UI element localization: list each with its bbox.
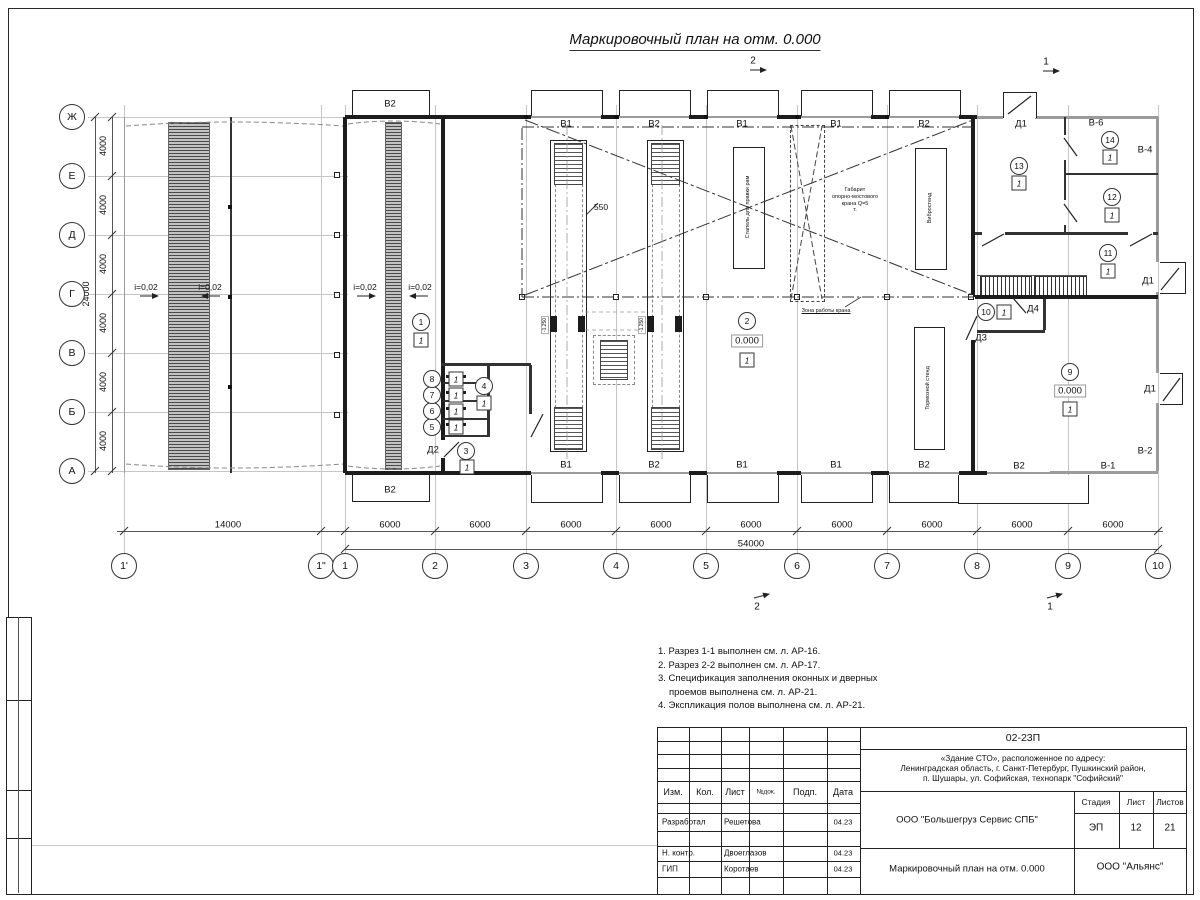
left-stamp-box [6, 700, 32, 792]
tb-line [827, 728, 828, 894]
axis-bubble: 2 [422, 553, 448, 579]
tb-org: ООО "Большегруз Сервис СПБ" [896, 815, 1038, 826]
room-number: 11 [1099, 244, 1117, 262]
column [228, 385, 232, 389]
dim-value: 4000 [98, 136, 108, 156]
gate-line [987, 472, 1050, 474]
door-label: Д1 [1015, 119, 1027, 130]
column [703, 294, 709, 300]
tb-object: п. Шушары, ул. Софийская, технопарк "Соф… [923, 773, 1123, 783]
axis-bubble: 7 [874, 553, 900, 579]
ramp-hatch [385, 122, 402, 470]
dim-value: 4000 [98, 254, 108, 274]
gate-vestibule [958, 475, 1089, 504]
slope-label: i=0,02 [198, 282, 221, 292]
tb-sheets-label: Листов [1156, 797, 1184, 807]
tb-line [658, 877, 860, 878]
axis-bubble: 10 [1145, 553, 1171, 579]
window-wall [1156, 292, 1159, 373]
tb-name: Решетова [724, 818, 761, 827]
door-box [1160, 373, 1183, 405]
gate-line [619, 116, 689, 118]
axis-bubble: 1 [332, 553, 358, 579]
axis-bubble: Б [59, 399, 85, 425]
partition [443, 435, 487, 438]
wall [975, 295, 1158, 299]
partition [975, 232, 982, 235]
axis-line [526, 105, 527, 553]
page-title: Маркировочный план на отм. 0.000 [569, 31, 820, 51]
dim-value: 4000 [98, 431, 108, 451]
axis-line [88, 412, 348, 413]
gate-vestibule [619, 90, 691, 118]
gate-vestibule [889, 475, 961, 503]
tb-line [658, 831, 860, 832]
gate-label: В2 [1013, 461, 1025, 472]
axis-bubble-g1: Ж [59, 104, 85, 130]
window-wall [1156, 403, 1159, 471]
column [334, 352, 340, 358]
room-number: 14 [1101, 131, 1119, 149]
column [614, 115, 618, 119]
axis-bubble: Е [59, 163, 85, 189]
door-box [1003, 92, 1037, 118]
wall-bottom [345, 471, 531, 475]
notes-block: 1. Разрез 1-1 выполнен см. л. АР-16. 2. … [658, 645, 878, 713]
dim-line [112, 117, 113, 473]
tb-line [658, 803, 860, 804]
partition [1064, 117, 1067, 135]
pit-bar [675, 316, 682, 332]
wall [971, 117, 975, 297]
gate-label: В1 [560, 119, 572, 130]
tb-line [860, 791, 1186, 792]
note-line: проемов выполнена см. л. АР-21. [658, 686, 878, 700]
floor-mark: 1 [460, 460, 475, 475]
tb-col: Лист [725, 787, 745, 797]
dim-value: 6000 [560, 520, 581, 531]
tb-col: Дата [833, 787, 853, 797]
floor-mark: 1 [449, 372, 464, 387]
partition [529, 365, 532, 414]
door-label: Д1 [1144, 384, 1156, 395]
tb-sheets-value: 21 [1164, 823, 1175, 834]
wall-bottom [777, 471, 801, 475]
column [795, 115, 799, 119]
gate-label: В1 [830, 460, 842, 471]
axis-bubble: 4 [603, 553, 629, 579]
axis-line [88, 176, 348, 177]
tb-col: №док. [756, 789, 775, 796]
column [968, 294, 974, 300]
column [334, 412, 340, 418]
axis-bubble: 5 [693, 553, 719, 579]
level-mark: 0.000 [731, 335, 763, 348]
gate-vestibule [531, 90, 603, 118]
column [334, 292, 340, 298]
axis-line [887, 105, 888, 553]
window-wall [977, 116, 1003, 119]
pit-stair [554, 143, 583, 185]
gate-line [889, 116, 959, 118]
axis-bubble: 8 [964, 553, 990, 579]
room-number: 6 [423, 402, 441, 420]
left-stamp-box [6, 790, 32, 840]
floor-mark: 1 [740, 353, 755, 368]
gate-vestibule [801, 475, 873, 503]
column [228, 205, 232, 209]
column [519, 294, 525, 300]
tb-col: Кол. [696, 787, 714, 797]
tb-line [783, 728, 784, 894]
equipment-label: Тормозной стенд [925, 366, 931, 410]
drawing-sheet: Маркировочный план на отм. 0.000 2 1 2 1… [0, 0, 1200, 900]
tb-code: 02-23П [1006, 732, 1040, 744]
pit-dim-550: 550 [594, 202, 608, 212]
tb-role: Н. контр. [662, 849, 695, 858]
column [334, 232, 340, 238]
tb-object: «Здание СТО», расположенное по адресу: [941, 753, 1106, 763]
tb-name: Двоеглазов [724, 849, 767, 858]
gate-vestibule [707, 475, 779, 503]
tb-object: Ленинградская область, г. Санкт-Петербур… [900, 763, 1145, 773]
partition [977, 330, 1045, 333]
tb-line [860, 848, 1186, 849]
section-mark-2-bottom: 2 [754, 602, 760, 613]
gate-line [531, 472, 601, 474]
door-label: Д4 [1027, 304, 1039, 315]
level-mark: 0.000 [1054, 385, 1086, 398]
dim-line [117, 531, 1163, 532]
tb-line [658, 768, 860, 769]
tb-line [721, 728, 722, 894]
floor-mark: 1 [1103, 150, 1118, 165]
gate-label: В1 [736, 119, 748, 130]
room-number: 2 [738, 312, 756, 330]
column [794, 294, 800, 300]
gate-label: В2 [918, 119, 930, 130]
tb-line [1119, 791, 1120, 848]
gate-label: В1 [830, 119, 842, 130]
floor-mark: 1 [1012, 176, 1027, 191]
service-pit-inner [555, 144, 583, 448]
room-number: 9 [1061, 363, 1079, 381]
tb-company: ООО "Альянс" [1097, 862, 1164, 873]
floor-mark: 1 [477, 396, 492, 411]
dim-value: 4000 [98, 372, 108, 392]
tb-line [658, 813, 860, 814]
gate-label: В2 [384, 485, 396, 496]
tb-date: 04.23 [834, 865, 853, 874]
wall [441, 117, 445, 440]
pit-bar [550, 316, 557, 332]
gate-line [707, 472, 777, 474]
gate-line [801, 472, 871, 474]
dim-total: 54000 [738, 539, 764, 550]
tb-line [658, 781, 860, 782]
gate-vestibule [531, 475, 603, 503]
dim-value: 6000 [921, 520, 942, 531]
gate-line [619, 472, 689, 474]
gate-vestibule [619, 475, 691, 503]
note-line: 4. Экспликация полов выполнена см. л. АР… [658, 699, 878, 713]
axis-bubble: Д [59, 222, 85, 248]
window-label: В-6 [1089, 118, 1104, 129]
axis-bubble: 1' [111, 553, 137, 579]
axis-line [88, 235, 348, 236]
tb-date: 04.23 [834, 849, 853, 858]
tb-stage-value: ЭП [1089, 823, 1103, 834]
crane-clearance-box [790, 125, 825, 302]
column [228, 295, 232, 299]
wall-bottom [871, 471, 889, 475]
frame-line [8, 845, 657, 846]
gate-line [707, 116, 777, 118]
floor-mark: 1 [1101, 264, 1116, 279]
ramp-hatch [168, 122, 210, 470]
window-label: В-1 [1101, 461, 1116, 472]
door-label: Д3 [975, 333, 987, 344]
service-pit-inner [652, 144, 680, 448]
column [885, 115, 889, 119]
tb-col: Подп. [793, 787, 817, 797]
gate-label: В1 [560, 460, 572, 471]
slope-label: i=0,02 [134, 282, 157, 292]
axis-bubble: 1" [308, 553, 334, 579]
slope-label: i=0,02 [353, 282, 376, 292]
equipment-label: Стапель для правки рам [745, 176, 751, 239]
pit-level-mark: -1.250 [541, 316, 549, 334]
room-number: 7 [423, 386, 441, 404]
gate-line [531, 116, 601, 118]
tb-line [658, 846, 860, 847]
left-stamp-box [6, 838, 32, 895]
gate-label: В2 [648, 460, 660, 471]
floor-mark: 1 [414, 333, 429, 348]
tb-line [658, 861, 860, 862]
axis-bubble: В [59, 340, 85, 366]
partition [1064, 160, 1067, 200]
pit-stair [554, 407, 583, 450]
pit-stair [651, 143, 680, 185]
dim-value: 14000 [215, 520, 241, 531]
note-line: 2. Разрез 2-2 выполнен см. л. АР-17. [658, 659, 878, 673]
dim-value: 4000 [98, 195, 108, 215]
section-mark-1-bottom: 1 [1047, 602, 1053, 613]
axis-bubble: 3 [513, 553, 539, 579]
column [524, 115, 528, 119]
crane-note: Габарит [845, 187, 865, 193]
room-number: 4 [475, 377, 493, 395]
wall-bottom [601, 471, 619, 475]
equipment-label: Вибростенд [927, 193, 933, 224]
partition [1065, 173, 1158, 176]
axis-line [435, 105, 436, 553]
title-block: 02-23П «Здание СТО», расположенное по ад… [657, 727, 1187, 895]
stair-hatch [600, 340, 628, 380]
tb-line [658, 754, 860, 755]
gate-vestibule [707, 90, 779, 118]
axis-bubble: 6 [784, 553, 810, 579]
floor-mark: 1 [449, 420, 464, 435]
dim-value: 6000 [650, 520, 671, 531]
tb-doc-title: Маркировочный план на отм. 0.000 [889, 864, 1045, 875]
wall-bottom [689, 471, 707, 475]
gate-line [801, 116, 871, 118]
gate-label: В1 [736, 460, 748, 471]
axis-line [616, 105, 617, 553]
axis-bubble: А [59, 458, 85, 484]
axis-line [88, 117, 348, 118]
column [884, 294, 890, 300]
tb-line [860, 749, 1186, 750]
dim-value: 6000 [1011, 520, 1032, 531]
axis-bubble: Г [59, 281, 85, 307]
crane-note: т. [853, 207, 856, 213]
tb-role: Разработал [662, 818, 706, 827]
note-line: 1. Разрез 1-1 выполнен см. л. АР-16. [658, 645, 878, 659]
door-box [1160, 262, 1186, 294]
partition [441, 363, 531, 366]
dim-value: 6000 [831, 520, 852, 531]
door-label: Д2 [427, 445, 439, 456]
axis-line [88, 471, 348, 472]
section-mark-2-top: 2 [750, 56, 756, 67]
slope-label: i=0,02 [408, 282, 431, 292]
dim-value: 6000 [1102, 520, 1123, 531]
room-number: 5 [423, 418, 441, 436]
floor-mark: 1 [1063, 402, 1078, 417]
tb-line [658, 741, 860, 742]
dim-value: 6000 [740, 520, 761, 531]
tb-col: Изм. [663, 787, 682, 797]
axis-line [88, 353, 348, 354]
partition [1153, 232, 1158, 235]
axis-bubble: 9 [1055, 553, 1081, 579]
room-number: 13 [1010, 157, 1028, 175]
dim-value: 4000 [98, 313, 108, 333]
tb-name: Коротаев [724, 865, 759, 874]
axis-line [321, 105, 322, 553]
room-number: 12 [1103, 188, 1121, 206]
partition [1064, 225, 1067, 233]
dim-value: 6000 [469, 520, 490, 531]
tb-date: 04.23 [834, 818, 853, 827]
window-wall [1156, 117, 1159, 262]
floor-mark: 1 [997, 305, 1012, 320]
stair-hatch [1034, 276, 1087, 297]
gate-vestibule [801, 90, 873, 118]
section-mark-1-top: 1 [1043, 57, 1049, 68]
tb-line [1074, 791, 1075, 894]
dim-value: 6000 [379, 520, 400, 531]
crane-note: опорно-мостового [832, 194, 878, 200]
column [334, 172, 340, 178]
room-number: 1 [412, 313, 430, 331]
room-number: 3 [457, 442, 475, 460]
pit-stair [651, 407, 680, 450]
tb-line [689, 728, 690, 894]
ramp-edge [124, 117, 125, 473]
column [613, 294, 619, 300]
tb-line [860, 728, 861, 894]
tb-sheet-label: Лист [1127, 797, 1145, 807]
stair-hatch [980, 276, 1032, 297]
floor-mark: 1 [1105, 208, 1120, 223]
door-label: Д1 [1142, 276, 1154, 287]
gate-label: В2 [384, 99, 396, 110]
pit-bar [578, 316, 585, 332]
tb-sheet-value: 12 [1130, 823, 1141, 834]
column [704, 115, 708, 119]
partition [1043, 299, 1046, 330]
gate-label: В2 [648, 119, 660, 130]
left-stamp-box [6, 617, 32, 702]
axis-line [88, 294, 348, 295]
gate-line [889, 472, 959, 474]
tb-role: ГИП [662, 865, 678, 874]
wall-top [345, 115, 531, 119]
wall [343, 117, 347, 473]
wall [971, 340, 975, 473]
room-number: 8 [423, 370, 441, 388]
gate-label: В2 [918, 460, 930, 471]
window-label: В-4 [1138, 145, 1153, 156]
tb-line [1153, 791, 1154, 848]
window-label: В-2 [1138, 446, 1153, 457]
room-number: 10 [977, 303, 995, 321]
pit-bar [647, 316, 654, 332]
dim-line [95, 117, 96, 473]
floor-mark: 1 [449, 388, 464, 403]
left-stamp-divider [18, 617, 19, 893]
note-line: 3. Спецификация заполнения оконных и две… [658, 672, 878, 686]
gate-vestibule [889, 90, 961, 118]
tb-line [1074, 813, 1186, 814]
partition [1005, 232, 1128, 235]
crane-zone-label: Зона работы крана [802, 308, 851, 314]
tb-stage-label: Стадия [1082, 797, 1111, 807]
pit-level-mark: -1.250 [638, 316, 646, 334]
floor-mark: 1 [449, 404, 464, 419]
